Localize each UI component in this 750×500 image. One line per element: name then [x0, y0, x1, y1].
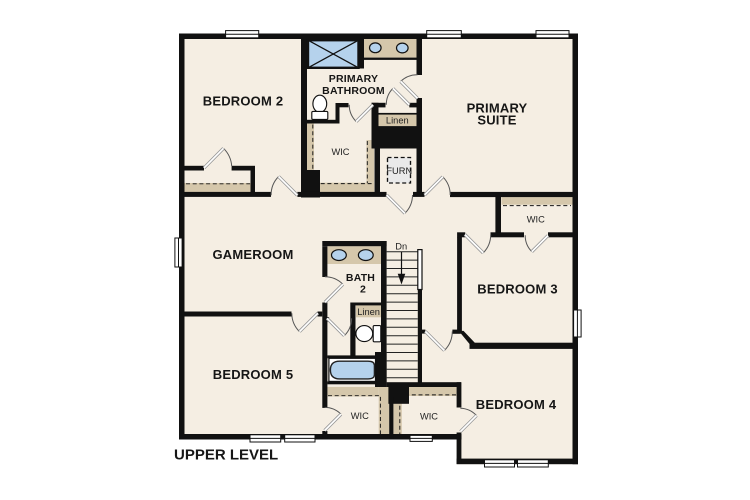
svg-text:FURN: FURN [386, 166, 412, 176]
svg-text:Linen: Linen [357, 307, 380, 317]
svg-text:BATHROOM: BATHROOM [322, 85, 385, 97]
svg-text:GAMEROOM: GAMEROOM [212, 247, 293, 262]
svg-text:Linen: Linen [386, 115, 409, 125]
svg-text:WIC: WIC [420, 412, 438, 422]
svg-text:BATH: BATH [346, 272, 375, 284]
svg-text:UPPER LEVEL: UPPER LEVEL [174, 447, 278, 464]
svg-text:2: 2 [360, 284, 366, 296]
svg-text:WIC: WIC [527, 215, 545, 225]
svg-text:PRIMARY: PRIMARY [329, 73, 378, 85]
svg-text:WIC: WIC [331, 147, 349, 157]
svg-text:BEDROOM 4: BEDROOM 4 [476, 397, 557, 412]
svg-text:BEDROOM 3: BEDROOM 3 [477, 282, 558, 297]
svg-text:BEDROOM 2: BEDROOM 2 [203, 94, 284, 109]
svg-text:Dn: Dn [395, 242, 407, 252]
svg-text:WIC: WIC [351, 411, 369, 421]
svg-text:BEDROOM 5: BEDROOM 5 [213, 367, 294, 382]
svg-text:SUITE: SUITE [477, 113, 516, 128]
